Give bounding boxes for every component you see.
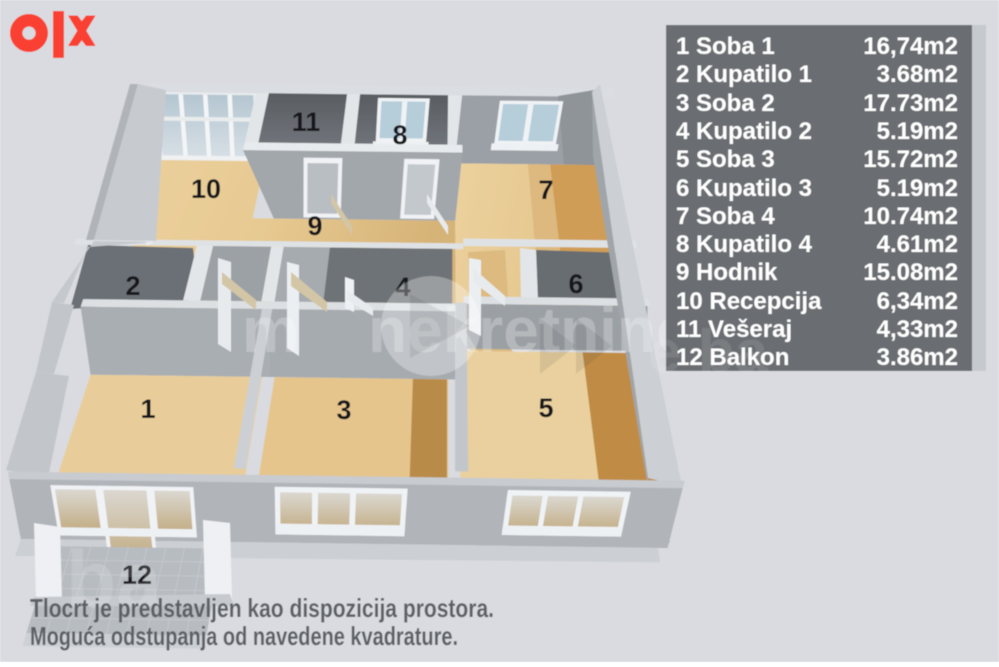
svg-text:6,34m2: 6,34m2 — [877, 288, 958, 315]
svg-text:7 Soba 4: 7 Soba 4 — [676, 203, 775, 230]
svg-text:m: m — [242, 294, 299, 366]
svg-text:7: 7 — [538, 175, 553, 205]
svg-text:6 Kupatilo 3: 6 Kupatilo 3 — [676, 175, 812, 202]
svg-text:1: 1 — [140, 394, 155, 424]
svg-text:Tlocrt je predstavljen kao dis: Tlocrt je predstavljen kao dispozicija p… — [30, 593, 494, 623]
svg-text:8 Kupatilo 4: 8 Kupatilo 4 — [676, 231, 813, 258]
svg-text:10: 10 — [191, 174, 221, 204]
svg-text:3 Soba 2: 3 Soba 2 — [676, 90, 775, 117]
svg-text:2 Kupatilo 1: 2 Kupatilo 1 — [676, 61, 812, 88]
svg-text:4,33m2: 4,33m2 — [877, 316, 958, 343]
svg-text:8: 8 — [392, 120, 407, 150]
svg-text:5.19m2: 5.19m2 — [877, 175, 958, 202]
svg-text:e ba: e ba — [648, 318, 769, 385]
svg-text:10.74m2: 10.74m2 — [863, 203, 958, 230]
svg-text:16,74m2: 16,74m2 — [863, 33, 958, 60]
svg-text:9: 9 — [307, 211, 322, 241]
svg-text:1 Soba 1: 1 Soba 1 — [676, 33, 775, 60]
svg-text:11: 11 — [292, 107, 321, 137]
svg-text:10 Recepcija: 10 Recepcija — [676, 288, 822, 315]
svg-text:9 Hodnik: 9 Hodnik — [676, 259, 778, 286]
svg-text:5.19m2: 5.19m2 — [877, 118, 958, 145]
svg-text:3.86m2: 3.86m2 — [877, 344, 958, 371]
svg-text:Moguća odstupanja od navedene: Moguća odstupanja od navedene kvadrature… — [30, 621, 458, 651]
svg-text:4 Kupatilo 2: 4 Kupatilo 2 — [676, 118, 812, 145]
svg-text:15.08m2: 15.08m2 — [863, 259, 958, 286]
svg-text:2: 2 — [125, 271, 140, 301]
svg-text:4.61m2: 4.61m2 — [877, 231, 958, 258]
svg-text:5: 5 — [538, 393, 553, 423]
svg-text:15.72m2: 15.72m2 — [863, 146, 958, 173]
svg-text:17.73m2: 17.73m2 — [863, 90, 958, 117]
svg-text:3: 3 — [336, 395, 351, 425]
svg-text:3.68m2: 3.68m2 — [877, 61, 958, 88]
svg-text:5 Soba 3: 5 Soba 3 — [676, 146, 775, 173]
